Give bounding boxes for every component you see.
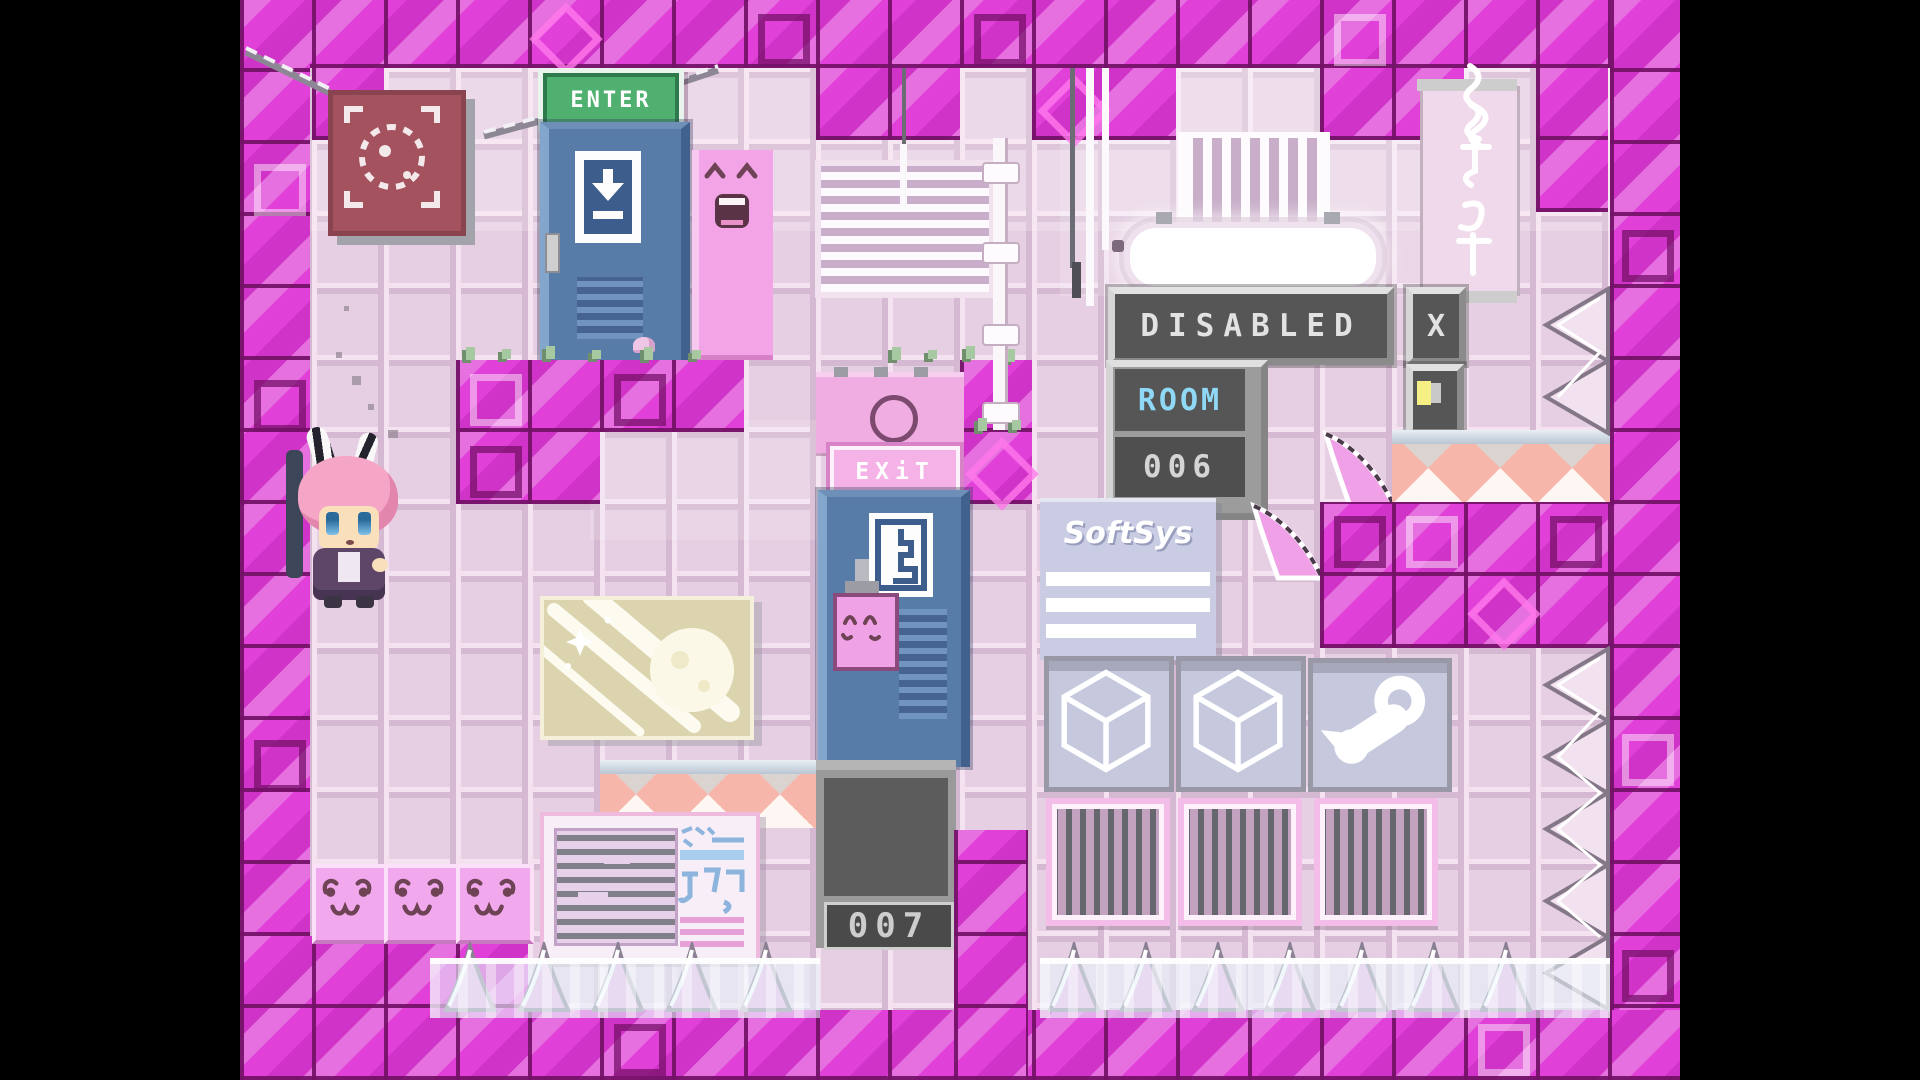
- block-inset-square: [470, 446, 522, 498]
- claw-stem-base: [845, 581, 879, 593]
- block-inset-square: [470, 374, 522, 426]
- block-inset-square: [254, 164, 306, 216]
- wall-grille: [1046, 798, 1170, 926]
- player-mouth: [346, 540, 354, 545]
- dust-specks: [336, 352, 342, 358]
- pit-opening: [824, 778, 948, 896]
- happy-slab-face: [699, 150, 765, 260]
- softsys-sign: SoftSys: [1040, 498, 1216, 660]
- machine-bolt: [834, 367, 848, 377]
- grass-tuft: [1012, 420, 1021, 430]
- block-inset-square: [1478, 1024, 1530, 1076]
- grass-tuft: [546, 346, 555, 359]
- player-eye: [326, 512, 339, 535]
- smiley-block: [456, 864, 534, 944]
- block-inset-square: [614, 1024, 666, 1076]
- pit-number: 007: [827, 905, 951, 947]
- letterbox-right: [1680, 0, 1920, 1080]
- cube-panel: [1044, 656, 1174, 792]
- softsys-stripe: [1046, 598, 1210, 612]
- block-inset-square: [1334, 14, 1386, 66]
- steam-panel: [1308, 658, 1452, 792]
- dust-specks: [368, 404, 374, 410]
- claw-robot-face: [837, 597, 887, 657]
- aircon-text-gap: [604, 856, 630, 864]
- enter-sign-label: ENTER: [543, 73, 679, 127]
- hanging-wire: [1070, 68, 1075, 268]
- grass-tuft: [692, 350, 701, 359]
- letterbox-left: [0, 0, 240, 1080]
- block-inset-square: [254, 740, 306, 792]
- disabled-label: DISABLED: [1115, 294, 1387, 358]
- block-inset-square: [1406, 516, 1458, 568]
- hanging-wire: [1086, 68, 1094, 306]
- wireframe-cube-icon: [1051, 663, 1161, 779]
- room-label-field: ROOM: [1115, 369, 1245, 431]
- disabled-panel: DISABLED: [1108, 287, 1394, 365]
- tube-lamp: [1124, 222, 1382, 292]
- hanging-wire: [1072, 262, 1081, 298]
- claw-spike: [1318, 428, 1400, 510]
- block-inset-square: [1622, 950, 1674, 1002]
- player-eye: [358, 512, 371, 535]
- lamp-mount: [1324, 212, 1340, 224]
- smiley-face: [316, 868, 378, 928]
- wall-grille: [1178, 798, 1302, 926]
- machine-porthole: [870, 395, 918, 443]
- smiley-block: [312, 864, 390, 944]
- grass-tuft: [978, 418, 987, 431]
- water-band-right: [1040, 958, 1610, 1018]
- exit-door[interactable]: [818, 490, 970, 767]
- softsys-brand: SoftSys: [1040, 502, 1216, 551]
- scroll-top-scribble: [1440, 62, 1500, 148]
- room-counter: ROOM 006: [1106, 360, 1268, 520]
- grass-tuft: [592, 350, 601, 359]
- player-foot: [356, 596, 374, 608]
- aircon-katakana-art: [678, 824, 748, 950]
- exit-sign-label: EXiT: [834, 450, 956, 494]
- door-vent: [577, 277, 643, 339]
- aircon-text-block: [554, 828, 678, 946]
- grass-tuft: [966, 346, 975, 359]
- platform-cap: [600, 760, 818, 774]
- block-inset-square: [1550, 516, 1602, 568]
- game-viewport[interactable]: ENTER: [240, 0, 1680, 1080]
- wall-right: [1610, 0, 1680, 1080]
- target-poster: [328, 90, 466, 236]
- grass-tuft: [928, 350, 937, 359]
- door-vent: [899, 609, 947, 719]
- block-inset-square: [974, 14, 1026, 66]
- softsys-stripe: [1046, 624, 1196, 638]
- smiley-face: [460, 868, 522, 928]
- softsys-stripe: [1046, 572, 1210, 586]
- toggle-button[interactable]: [1406, 364, 1464, 436]
- lamp-mount: [1156, 212, 1172, 224]
- shooting-moon-art: [544, 600, 750, 736]
- aircon-text-gap: [578, 892, 608, 900]
- claw-spike: [1246, 500, 1328, 582]
- grass-tuft: [502, 349, 511, 359]
- wall-block: [1536, 68, 1608, 212]
- block-inset-square: [1334, 516, 1386, 568]
- machine-bolt: [914, 367, 928, 377]
- close-label: X: [1413, 294, 1459, 358]
- chain-pipe: [986, 138, 1012, 430]
- room-number-field: 006: [1115, 437, 1245, 497]
- water-band-left: [430, 958, 820, 1018]
- grass-tuft: [644, 347, 653, 360]
- block-inset-square: [1622, 230, 1674, 282]
- smiley-block: [384, 864, 462, 944]
- player-foot: [324, 596, 342, 608]
- grass-tuft: [892, 347, 901, 360]
- block-inset-square: [614, 374, 666, 426]
- door-handle: [545, 233, 560, 273]
- lamp-speck: [1112, 240, 1124, 252]
- hanging-wire: [902, 68, 906, 144]
- aircon-poster: エアコン: [540, 812, 760, 962]
- player-blade: [286, 450, 303, 578]
- room-label: ROOM: [1115, 369, 1245, 431]
- enter-door[interactable]: [540, 122, 690, 369]
- player-character: [286, 428, 410, 614]
- dust-specks: [344, 306, 349, 311]
- light-haze-exit: [590, 420, 820, 540]
- game-screen: ENTER: [0, 0, 1920, 1080]
- lamp-toggle-icon-lit: [1417, 381, 1431, 405]
- down-arrow-door-icon: [575, 151, 641, 243]
- pipe-joint: [982, 162, 1020, 184]
- happy-slab: [692, 150, 773, 360]
- grass-tuft: [466, 347, 475, 360]
- wireframe-cube-icon: [1183, 663, 1293, 779]
- wall-grille: [1314, 798, 1438, 926]
- focus-target-icon: [333, 95, 451, 221]
- pit-shaft: 007: [816, 760, 956, 948]
- block-inset-square: [1622, 734, 1674, 786]
- moon-poster: [540, 596, 754, 740]
- pit-number-field: 007: [824, 902, 954, 950]
- claw-robot[interactable]: [833, 593, 899, 671]
- machine-bolt: [874, 367, 888, 377]
- smiley-face: [388, 868, 450, 928]
- close-panel[interactable]: X: [1406, 287, 1466, 365]
- cube-panel: [1176, 656, 1306, 792]
- block-inset-square: [254, 380, 306, 432]
- pipe-joint: [982, 324, 1020, 346]
- radiator-vent: [1178, 132, 1330, 232]
- dust-specks: [352, 376, 361, 385]
- pit-side-column: [954, 830, 1028, 1080]
- platform-xtiles-right: [1392, 430, 1610, 506]
- hanging-wire: [1102, 68, 1109, 250]
- steam-logo-icon: [1313, 663, 1441, 781]
- exit-machine-top: [816, 372, 964, 453]
- pipe-joint: [982, 242, 1020, 264]
- player-hand: [372, 558, 388, 572]
- hanging-wire: [900, 144, 907, 210]
- zigzag-spikes-upper: [1536, 286, 1610, 436]
- room-number: 006: [1115, 437, 1245, 497]
- player-apron: [338, 552, 360, 582]
